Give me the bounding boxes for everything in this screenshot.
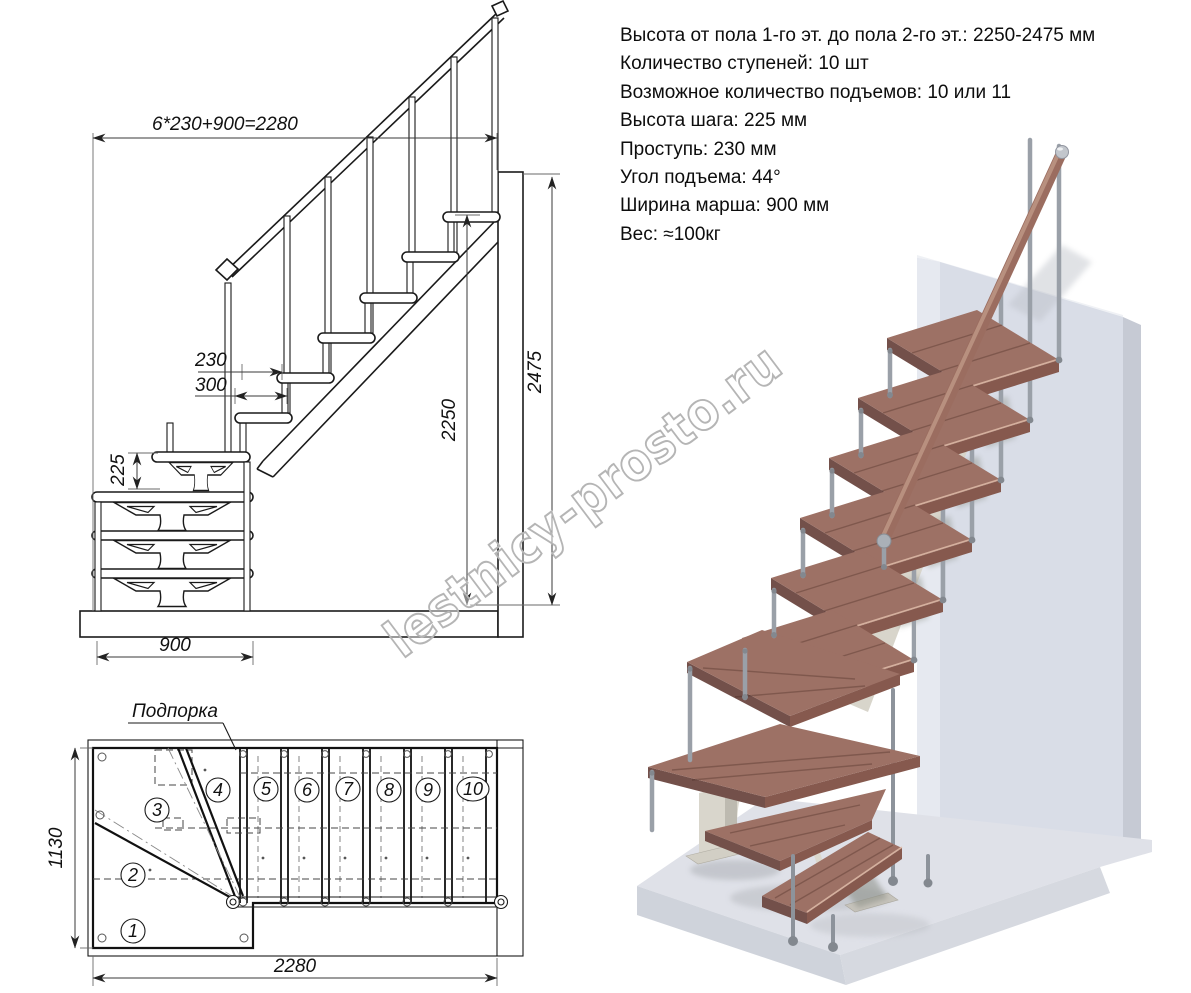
step-number: 4 — [213, 780, 223, 800]
render-3d — [637, 140, 1152, 985]
step-number: 8 — [384, 780, 394, 800]
spec-line-height-range: Высота от пола 1-го эт. до пола 2-го эт.… — [620, 22, 1160, 50]
spec-line-weight: Вес: ≈100кг — [620, 221, 1160, 249]
dim-total-run: 6*230+900=2280 — [152, 114, 298, 135]
specs-list: Высота от пола 1-го эт. до пола 2-го эт.… — [620, 22, 1160, 249]
spec-line-step-count: Количество ступеней: 10 шт — [620, 50, 1160, 78]
plan-drawing: 1 2 3 4 5 6 7 8 9 10 Подпорка 1130 2280 — [46, 701, 523, 986]
step-number: 7 — [343, 779, 354, 799]
dim-2475: 2475 — [525, 350, 546, 394]
step-number: 10 — [463, 779, 483, 799]
dim-1130: 1130 — [46, 827, 67, 868]
step-number: 9 — [423, 780, 433, 800]
step-number: 1 — [128, 921, 138, 941]
spec-line-angle: Угол подъема: 44° — [620, 164, 1160, 192]
support-callout: Подпорка — [128, 701, 236, 750]
dim-225: 225 — [108, 454, 129, 487]
step-number: 5 — [261, 779, 272, 799]
stairs-drawing-page: 6*230+900=2280 230 300 225 2250 2475 900 — [0, 0, 1191, 993]
dim-2250: 2250 — [439, 398, 460, 442]
dim-300: 300 — [195, 375, 227, 396]
spec-line-rise-count: Возможное количество подъемов: 10 или 11 — [620, 79, 1160, 107]
spec-line-step-height: Высота шага: 225 мм — [620, 107, 1160, 135]
dim-2280: 2280 — [273, 956, 317, 977]
spec-line-tread-depth: Проступь: 230 мм — [620, 136, 1160, 164]
support-label: Подпорка — [132, 701, 218, 722]
dim-900: 900 — [159, 635, 191, 656]
step-number: 2 — [127, 865, 138, 885]
spec-line-march-width: Ширина марша: 900 мм — [620, 192, 1160, 220]
watermark-text: lestnicy-prosto.ru — [374, 333, 793, 670]
plan-step-numbers: 1 2 3 4 5 6 7 8 9 10 — [121, 777, 489, 943]
step-number: 6 — [302, 780, 313, 800]
step-number: 3 — [152, 800, 162, 820]
dim-230: 230 — [194, 350, 227, 371]
